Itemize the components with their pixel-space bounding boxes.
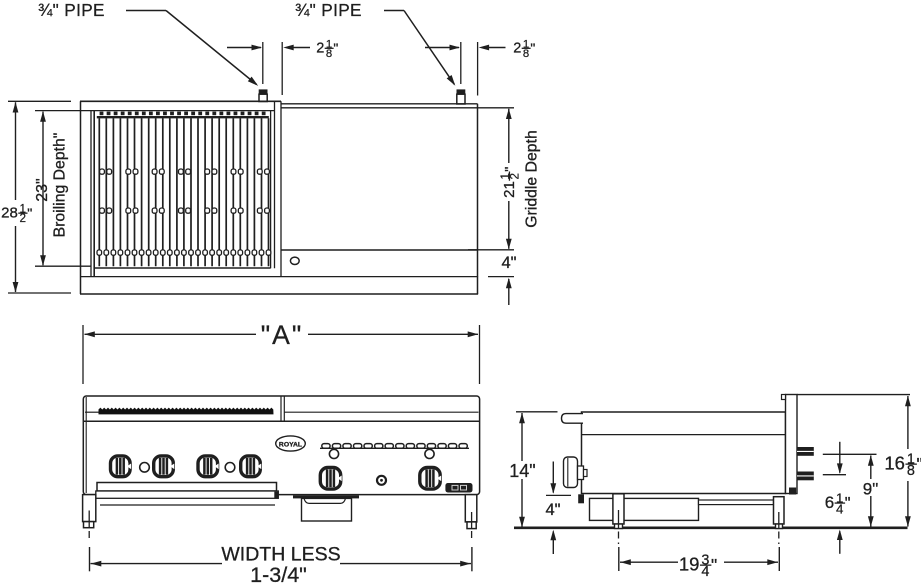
svg-text:Broiling Depth": Broiling Depth": [52, 133, 69, 238]
svg-text:¾" PIPE: ¾" PIPE: [295, 0, 362, 20]
svg-text:8: 8: [907, 463, 915, 479]
svg-text:¾" PIPE: ¾" PIPE: [38, 0, 105, 20]
svg-text:"A": "A": [261, 320, 304, 350]
svg-text:": ": [845, 495, 851, 513]
svg-text:": ": [711, 555, 717, 575]
svg-text:": ": [502, 167, 518, 172]
svg-text:Griddle Depth: Griddle Depth: [524, 130, 541, 227]
svg-text:": ": [27, 206, 32, 222]
svg-text:": ": [333, 41, 338, 56]
svg-text:4": 4": [501, 254, 516, 272]
svg-text:4: 4: [701, 564, 709, 580]
svg-text:19: 19: [679, 554, 700, 575]
svg-text:4: 4: [836, 501, 843, 516]
svg-text:": ": [530, 41, 535, 56]
svg-text:2: 2: [508, 173, 521, 180]
svg-text:2: 2: [19, 212, 26, 225]
svg-text:2: 2: [513, 41, 521, 57]
svg-text:8: 8: [523, 48, 529, 60]
svg-text:16: 16: [884, 453, 905, 474]
svg-text:": ": [916, 454, 921, 474]
svg-text:9": 9": [863, 480, 879, 499]
svg-text:ROYAL: ROYAL: [279, 441, 302, 448]
svg-text:28: 28: [1, 205, 18, 222]
svg-text:21: 21: [501, 181, 518, 198]
svg-text:6: 6: [825, 493, 834, 512]
svg-text:8: 8: [326, 48, 332, 60]
svg-text:2: 2: [316, 41, 324, 57]
svg-text:14": 14": [509, 461, 535, 481]
svg-text:23": 23": [34, 178, 51, 201]
svg-text:4": 4": [545, 501, 560, 519]
svg-text:1-3/4": 1-3/4": [250, 563, 307, 583]
